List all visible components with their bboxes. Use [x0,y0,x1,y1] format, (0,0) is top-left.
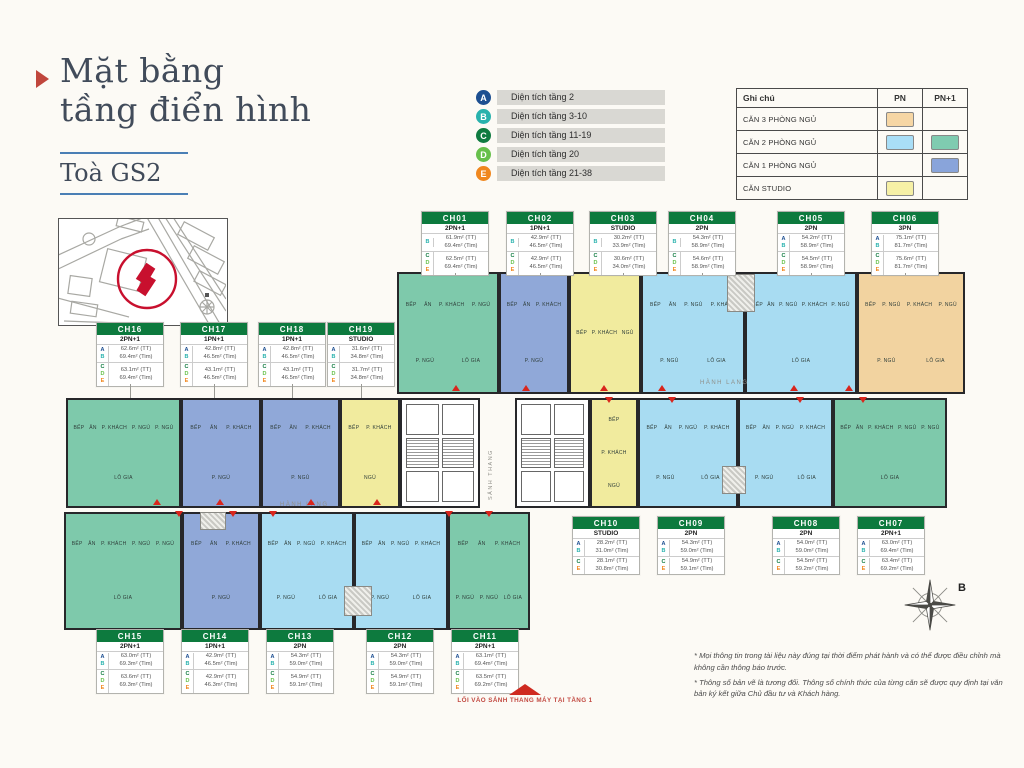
room-label: LÔ GIA [881,475,899,481]
hatch-block [722,466,746,494]
unit-areas: 42.8m² (TT)46.5m² (Tim) [193,345,247,362]
unit-id: CH05 [778,212,844,224]
unit-type: 1PN+1 [259,335,325,345]
unit-type: 2PN [778,224,844,234]
compass-rose-icon [903,578,957,637]
title-arrow-icon [36,70,49,88]
area-tt: 54.3m² (TT) [279,653,333,661]
area-tim: 59.2m² (Tim) [785,566,839,574]
unit-area-group: CDE43.1m² (TT)46.5m² (Tim) [181,363,247,386]
area-tim: 34.0m² (Tim) [602,264,656,272]
area-tt: 63.6m² (TT) [109,674,163,682]
corridor-label: HÀNH LANG [700,380,749,386]
elevator-cell [442,404,475,435]
area-tim: 59.0m² (Tim) [785,548,839,556]
area-tim: 59.0m² (Tim) [379,661,433,669]
unit-areas: 42.9m² (TT)46.5m² (Tim) [519,255,573,272]
unit-id: CH18 [259,323,325,335]
floor-letters: AB [872,235,884,251]
floor-letter: D [181,371,192,378]
plan-unit-CH16: BẾPĂNP. KHÁCHP. NGỦP. NGỦLÔ GIA [66,398,181,508]
floor-letter: C [773,559,784,566]
unit-areas: 54.3m² (TT)59.0m² (Tim) [279,652,333,669]
area-tim: 69.3m² (Tim) [109,661,163,669]
floor-letter: A [773,541,784,548]
area-tt: 54.2m² (TT) [790,235,844,243]
floor-letter: A [778,236,789,243]
room-label: BẾP [746,425,757,431]
floor-letter: E [858,566,869,573]
area-tt: 75.1m² (TT) [884,235,938,243]
plan-unit-CH13: BẾPĂNP. NGỦP. KHÁCHP. NGỦLÔ GIA [260,512,354,630]
area-tim: 69.4m² (Tim) [434,243,488,251]
area-tim: 30.8m² (Tim) [585,566,639,574]
stair-cell [442,438,475,469]
area-tt: 54.9m² (TT) [379,674,433,682]
floor-legend-label: Diện tích tầng 21-38 [497,166,665,181]
legend-swatch [886,112,914,127]
plan-unit-CH18: BẾPĂNP. KHÁCHP. NGỦ [261,398,340,508]
floor-letters: CDE [590,252,602,275]
entrance-arrow-icon [175,511,183,517]
room-label: LÔ GIA [792,358,810,364]
floor-letter: C [658,559,669,566]
floor-letter: B [573,548,584,555]
floor-letter: B [872,243,883,250]
area-tt: 54.6m² (TT) [681,256,735,264]
floor-letters: B [507,238,519,247]
floor-letter: C [259,364,270,371]
stair-cell [406,438,439,469]
unit-area-group: AB54.3m² (TT)59.0m² (Tim) [658,539,724,557]
elevator-cell [406,404,439,435]
unit-area-group: AB54.3m² (TT)59.0m² (Tim) [367,652,433,670]
floor-legend-label: Diện tích tầng 11-19 [497,128,665,143]
area-tim: 59.0m² (Tim) [279,661,333,669]
area-tt: 61.9m² (TT) [434,235,488,243]
floor-letter: B [452,661,463,668]
card-connector-line [702,273,703,275]
area-tt: 62.5m² (TT) [434,256,488,264]
area-tt: 54.5m² (TT) [785,558,839,566]
area-tim: 69.4m² (Tim) [109,375,163,383]
elevator-cell [442,471,475,502]
floor-letter: D [669,260,680,267]
unit-area-group: AB63.0m² (TT)69.3m² (Tim) [97,652,163,670]
unit-id: CH07 [858,517,924,529]
room-label: BẾP [73,425,84,431]
room-label: P. KHÁCH [601,450,626,456]
unit-areas: 31.6m² (TT)34.8m² (Tim) [340,345,394,362]
unit-area-group: CDE62.5m² (TT)69.4m² (Tim) [422,252,488,275]
unit-type-legend-table: Ghi chú PN PN+1 CĂN 3 PHÒNG NGỦCĂN 2 PHÒ… [736,88,968,200]
site-minimap [58,218,228,326]
entrance-arrow-icon [373,499,381,505]
room-label: BẾP [406,302,417,308]
unit-id: CH19 [328,323,394,335]
floor-letter: B [328,354,339,361]
unit-id: CH16 [97,323,163,335]
area-tt: 62.6m² (TT) [109,346,163,354]
unit-type: 2PN [367,642,433,652]
area-tt: 63.5m² (TT) [464,674,518,682]
unit-areas: 62.5m² (TT)69.4m² (Tim) [434,255,488,272]
area-tt: 63.1m² (TT) [109,367,163,375]
room-label: P. NGỦ [882,302,900,308]
room-label: P. NGỦ [155,425,173,431]
floor-letter: E [778,267,789,274]
area-tt: 54.3m² (TT) [681,235,735,243]
floor-letter: A [181,347,192,354]
room-label: LÔ GIA [707,358,725,364]
plan-unit-CH05: BẾPĂNP. NGỦP. KHÁCHP. NGỦLÔ GIA [745,272,857,394]
unit-id: CH06 [872,212,938,224]
floor-letter: D [872,260,883,267]
floor-letters: AB [858,540,870,556]
stair-cell [554,438,584,469]
floor-letters: CDE [328,363,340,386]
unit-area-group: CE54.5m² (TT)59.2m² (Tim) [773,557,839,574]
floor-letters: CE [573,558,585,574]
unit-card-CH08: CH082PNAB54.0m² (TT)59.0m² (Tim)CE54.5m²… [772,516,840,575]
room-label: BẾP [609,417,620,423]
area-tt: 42.9m² (TT) [519,235,573,243]
floor-letter: C [452,671,463,678]
room-label: ĂN [88,541,96,547]
unit-id: CH02 [507,212,573,224]
unit-areas: 54.3m² (TT)59.0m² (Tim) [670,539,724,556]
area-tt: 42.8m² (TT) [193,346,247,354]
unit-card-CH16: CH162PN+1AB62.6m² (TT)69.4m² (Tim)CDE63.… [96,322,164,387]
unit-areas: 54.9m² (TT)59.1m² (Tim) [670,557,724,574]
room-label: LÔ GIA [926,358,944,364]
unit-card-CH13: CH132PNAB54.3m² (TT)59.0m² (Tim)CDE54.9m… [266,629,334,694]
floor-letters: AB [367,653,379,669]
room-label: ĂN [89,425,97,431]
entrance-arrow-icon [216,499,224,505]
unit-card-CH07: CH072PN+1AB63.0m² (TT)69.4m² (Tim)CE63.4… [857,516,925,575]
entrance-arrow-icon [153,499,161,505]
floor-letter: C [97,364,108,371]
plan-unit-CH01: BẾPĂNP. KHÁCHP. NGỦP. NGỦLÔ GIA [397,272,499,394]
floor-letters: CDE [507,252,519,275]
floor-letter: D [267,678,278,685]
area-tim: 59.0m² (Tim) [670,548,724,556]
floor-letters: CDE [182,670,194,693]
room-label: LÔ GIA [114,595,132,601]
floor-letter: E [507,267,518,274]
footnotes: * Mọi thông tin trong tài liệu này đúng … [694,650,1006,703]
floor-letters: AB [452,653,464,669]
room-label: BẾP [268,541,279,547]
room-label: BẾP [190,425,201,431]
unit-areas: 31.7m² (TT)34.8m² (Tim) [340,366,394,383]
floor-letter: C [778,253,789,260]
unit-card-CH15: CH152PN+1AB63.0m² (TT)69.3m² (Tim)CDE63.… [96,629,164,694]
lobby-entrance-marker: LỐI VÀO SẢNH THANG MÁY TẠI TẦNG 1 [420,684,630,704]
unit-card-CH01: CH012PN+1B61.9m² (TT)69.4m² (Tim)CDE62.5… [421,211,489,276]
unit-areas: 54.2m² (TT)58.9m² (Tim) [790,234,844,251]
area-tim: 46.5m² (Tim) [271,354,325,362]
area-tt: 42.9m² (TT) [519,256,573,264]
entrance-arrow-icon [509,684,541,695]
elevator-cell [554,471,584,502]
unit-type: 2PN+1 [97,642,163,652]
unit-areas: 42.9m² (TT)46.5m² (Tim) [519,234,573,251]
room-label: P. KHÁCH [592,330,617,336]
area-tim: 33.9m² (Tim) [602,243,656,251]
unit-areas: 63.4m² (TT)69.2m² (Tim) [870,557,924,574]
floor-letters: CDE [669,252,681,275]
unit-area-group: CE54.9m² (TT)59.1m² (Tim) [658,557,724,574]
room-label: P. KHÁCH [439,302,464,308]
area-tim: 69.4m² (Tim) [870,548,924,556]
floor-letters: B [590,238,602,247]
elevator-cell [406,471,439,502]
card-connector-line [361,384,362,398]
floor-letter: E [658,566,669,573]
area-tim: 69.4m² (Tim) [434,264,488,272]
floor-letter: A [97,654,108,661]
floor-letter: A [259,347,270,354]
area-tim: 69.4m² (Tim) [109,354,163,362]
unit-type: STUDIO [573,529,639,539]
room-label: LÔ GIA [319,595,337,601]
card-connector-line [130,384,131,398]
floor-letters: CDE [367,670,379,693]
unit-type: 1PN+1 [182,642,248,652]
area-tt: 54.5m² (TT) [790,256,844,264]
area-tt: 42.8m² (TT) [271,346,325,354]
plan-unit-CH03: BẾPP. KHÁCHNGỦ [569,272,641,394]
floor-letter: E [182,685,193,692]
plan-unit-CH17: BẾPĂNP. KHÁCHP. NGỦ [181,398,261,508]
area-tim: 58.9m² (Tim) [681,264,735,272]
room-label: P. KHÁCH [226,425,251,431]
floor-letter: B [858,548,869,555]
area-tt: 63.0m² (TT) [870,540,924,548]
floor-letters: AB [97,653,109,669]
legend-swatch-cell [923,108,968,131]
floor-letters: CDE [97,670,109,693]
room-label: BẾP [650,302,661,308]
unit-areas: 54.6m² (TT)58.9m² (Tim) [681,255,735,272]
unit-card-CH06: CH063PNAB75.1m² (TT)81.7m² (Tim)CDE75.6m… [871,211,939,276]
entrance-arrow-icon [658,385,666,391]
entrance-arrow-icon [605,397,613,403]
unit-areas: 62.6m² (TT)69.4m² (Tim) [109,345,163,362]
entrance-arrow-icon [522,385,530,391]
legend-row: CĂN 3 PHÒNG NGỦ [737,108,968,131]
card-connector-line [623,273,624,275]
legend-swatch [886,181,914,196]
floor-letter: A [182,654,193,661]
area-tim: 58.9m² (Tim) [790,243,844,251]
legend-swatch [931,158,959,173]
unit-id: CH14 [182,630,248,642]
floor-letter: C [267,671,278,678]
unit-area-group: CDE75.6m² (TT)81.7m² (Tim) [872,252,938,275]
unit-type: 2PN+1 [858,529,924,539]
floor-letter: A [328,347,339,354]
area-tt: 75.6m² (TT) [884,256,938,264]
entrance-arrow-icon [668,397,676,403]
unit-areas: 43.1m² (TT)46.5m² (Tim) [271,366,325,383]
area-tt: 63.0m² (TT) [109,653,163,661]
stair-cell [521,438,551,469]
floor-letter: D [182,678,193,685]
room-label: BẾP [270,425,281,431]
unit-area-group: AB54.3m² (TT)59.0m² (Tim) [267,652,333,670]
legend-swatch-cell [923,154,968,177]
floor-letter: B [97,661,108,668]
area-tim: 34.8m² (Tim) [340,375,394,383]
room-label: P. NGỦ [212,595,230,601]
unit-id: CH03 [590,212,656,224]
room-label: P. NGỦ [480,595,498,601]
unit-type: 2PN [773,529,839,539]
room-label: P. KHÁCH [800,425,825,431]
room-label: LÔ GIA [504,595,522,601]
unit-card-CH03: CH03STUDIOB30.2m² (TT)33.9m² (Tim)CDE30.… [589,211,657,276]
floor-letter: D [97,371,108,378]
elevator-cell [521,404,551,435]
room-label: NGỦ [364,475,376,481]
floor-letter: E [97,378,108,385]
room-label: P. NGỦ [525,358,543,364]
area-tim: 46.5m² (Tim) [271,375,325,383]
unit-area-group: AB63.0m² (TT)69.4m² (Tim) [858,539,924,557]
floor-legend-row: DDiện tích tầng 20 [476,145,665,164]
floor-letter-badge: D [476,147,491,162]
unit-areas: 63.1m² (TT)69.4m² (Tim) [109,366,163,383]
unit-areas: 28.2m² (TT)31.0m² (Tim) [585,539,639,556]
area-tim: 46.5m² (Tim) [519,243,573,251]
card-connector-line [214,384,215,398]
floor-letter: B [97,354,108,361]
room-label: BẾP [646,425,657,431]
unit-type: 2PN+1 [97,335,163,345]
floor-letters: B [422,238,434,247]
room-label: BẾP [72,541,83,547]
room-label: BẾP [348,425,359,431]
unit-areas: 75.6m² (TT)81.7m² (Tim) [884,255,938,272]
unit-card-CH17: CH171PN+1AB42.8m² (TT)46.5m² (Tim)CDE43.… [180,322,248,387]
room-label: P. NGỦ [212,475,230,481]
room-label: P. NGỦ [277,595,295,601]
floor-letter: B [181,354,192,361]
area-tt: 54.9m² (TT) [670,558,724,566]
floor-letter: C [590,253,601,260]
floor-letter: E [669,267,680,274]
floor-letters: CDE [97,363,109,386]
room-label: P. KHÁCH [226,541,251,547]
floor-letter: B [182,661,193,668]
room-label: BẾP [576,330,587,336]
room-label: P. KHÁCH [704,425,729,431]
floor-letter: C [181,364,192,371]
floor-letter: E [573,566,584,573]
floor-letter: A [872,236,883,243]
plan-unit-CH19: BẾPP. KHÁCHNGỦ [340,398,400,508]
unit-areas: 63.0m² (TT)69.3m² (Tim) [109,652,163,669]
area-tim: 34.8m² (Tim) [340,354,394,362]
legend-swatch-cell [878,131,923,154]
room-label: P. KHÁCH [802,302,827,308]
area-tt: 63.4m² (TT) [870,558,924,566]
room-label: P. NGỦ [776,425,794,431]
floorplan-page: Mặt bằng tầng điển hình Toà GS2 [0,0,1024,768]
floor-letters: CDE [259,363,271,386]
floor-letter: A [658,541,669,548]
area-tt: 28.1m² (TT) [585,558,639,566]
room-label: P. KHÁCH [366,425,391,431]
footnote-1: * Mọi thông tin trong tài liệu này đúng … [694,650,1006,674]
unit-area-group: CDE31.7m² (TT)34.8m² (Tim) [328,363,394,386]
unit-card-CH02: CH021PN+1B42.9m² (TT)46.5m² (Tim)CDE42.9… [506,211,574,276]
area-tim: 46.5m² (Tim) [194,661,248,669]
room-label: ĂN [523,302,531,308]
compass-north-label: B [958,582,966,594]
area-tim: 58.9m² (Tim) [790,264,844,272]
room-label: ĂN [289,425,297,431]
legend-row: CĂN STUDIO [737,177,968,200]
unit-areas: 42.8m² (TT)46.5m² (Tim) [271,345,325,362]
area-tim: 81.7m² (Tim) [884,243,938,251]
floor-letters: CDE [422,252,434,275]
floor-letters: CE [858,558,870,574]
unit-area-group: AB42.8m² (TT)46.5m² (Tim) [181,345,247,363]
entrance-arrow-icon [229,511,237,517]
room-label: P. NGỦ [371,595,389,601]
unit-area-group: B54.3m² (TT)58.9m² (Tim) [669,234,735,252]
unit-area-group: CDE63.6m² (TT)69.3m² (Tim) [97,670,163,693]
room-label: P. NGỦ [679,425,697,431]
unit-type: 3PN [872,224,938,234]
room-label: ĂN [378,541,386,547]
unit-area-group: CDE42.9m² (TT)46.3m² (Tim) [182,670,248,693]
unit-area-group: CDE54.9m² (TT)59.1m² (Tim) [267,670,333,693]
unit-areas: 30.6m² (TT)34.0m² (Tim) [602,255,656,272]
unit-areas: 54.3m² (TT)58.9m² (Tim) [681,234,735,251]
card-connector-line [455,273,456,275]
unit-id: CH01 [422,212,488,224]
room-label: NGỦ [608,483,620,489]
room-label: ĂN [856,425,864,431]
area-tt: 31.7m² (TT) [340,367,394,375]
floor-letters: AB [97,346,109,362]
corridor-label: HÀNH LANG [280,502,329,508]
card-connector-line [292,384,293,398]
unit-areas: 54.5m² (TT)59.2m² (Tim) [785,557,839,574]
floor-legend-label: Diện tích tầng 3-10 [497,109,665,124]
entrance-arrow-icon [600,385,608,391]
floor-letter: C [573,559,584,566]
room-label: BẾP [865,302,876,308]
floor-letter: E [590,267,601,274]
area-tim: 69.4m² (Tim) [464,661,518,669]
floor-letter: E [181,378,192,385]
floor-letter: C [328,364,339,371]
floor-letter: D [367,678,378,685]
floor-letter: B [658,548,669,555]
area-tim: 46.3m² (Tim) [194,682,248,690]
room-label: P. NGỦ [660,358,678,364]
room-label: P. NGỦ [291,475,309,481]
room-label: BẾP [507,302,518,308]
page-title: Mặt bằng tầng điển hình [60,52,311,130]
area-tt: 43.1m² (TT) [193,367,247,375]
